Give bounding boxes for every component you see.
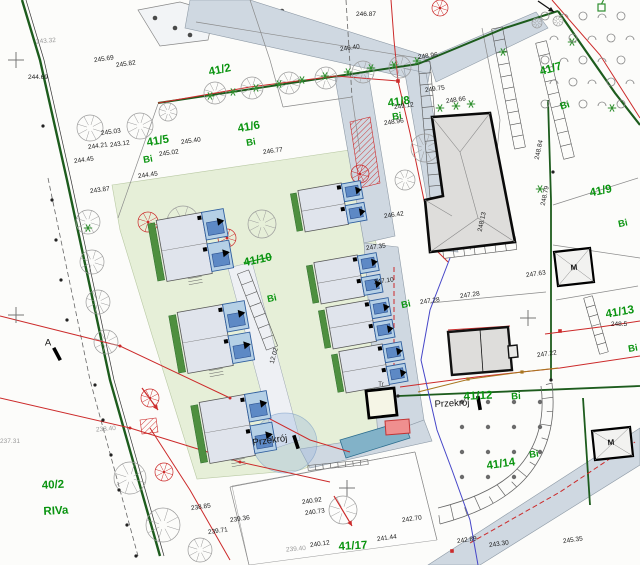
pole-marker — [129, 427, 132, 430]
pole-marker — [119, 345, 122, 348]
shrub-icon — [452, 102, 460, 109]
orchard-symbol — [579, 12, 587, 20]
orchard-dot — [460, 450, 464, 454]
tree — [86, 290, 110, 314]
boundary-point — [54, 238, 57, 241]
boundary-point — [125, 523, 128, 526]
parcel-line — [553, 178, 638, 205]
tree-dot — [173, 26, 178, 31]
orchard-dot — [460, 400, 464, 404]
orchard-dot — [512, 475, 516, 479]
orchard-symbol — [588, 80, 596, 84]
tree-center — [147, 221, 150, 224]
porch — [508, 345, 518, 358]
tree — [188, 538, 212, 562]
orchard-symbol — [550, 36, 558, 40]
boundary-point — [50, 198, 53, 201]
road — [428, 12, 548, 82]
orchard-symbol — [598, 102, 606, 106]
section-mark — [52, 347, 62, 361]
boundary-point-red — [450, 549, 454, 553]
utility-line-red — [552, 0, 640, 118]
boundary-point — [59, 278, 62, 281]
parcel-line — [430, 292, 546, 303]
slope-edge — [438, 386, 542, 508]
site-plan-canvas — [0, 0, 640, 565]
pole-marker — [239, 461, 242, 464]
site-plan-map: 41/241/5Bi41/6Bi41/8Bi41/7Bi41/9Bi41/10B… — [0, 0, 640, 565]
boundary-point — [551, 170, 554, 173]
wooded-area-symbol — [598, 4, 605, 11]
shrub-icon — [84, 224, 92, 231]
orchard-dot — [512, 400, 516, 404]
transformer-station — [366, 388, 397, 418]
boundary-point-red — [558, 329, 562, 333]
orchard-dot — [460, 475, 464, 479]
boundary-point — [549, 378, 552, 381]
boundary-point — [134, 554, 137, 557]
orchard-dot — [486, 425, 490, 429]
field-boundary — [158, 64, 418, 103]
grid-cross-icon — [520, 310, 536, 326]
tree-center — [359, 173, 362, 176]
orchard-dot — [486, 450, 490, 454]
pole-marker — [229, 397, 232, 400]
tree — [395, 170, 415, 190]
orchard-dot — [512, 425, 516, 429]
boundary-point — [101, 418, 104, 421]
tree — [127, 113, 153, 139]
tree-center — [163, 471, 166, 474]
tree-dot — [153, 16, 158, 21]
orchard-symbol — [579, 100, 587, 108]
tree — [553, 16, 563, 26]
tree — [77, 115, 103, 141]
boundary-point-red — [396, 79, 400, 83]
shrub-icon — [467, 100, 475, 107]
grid-cross-icon — [8, 307, 24, 323]
section-mark — [476, 396, 482, 410]
station-marker — [385, 419, 410, 435]
orchard-symbol — [560, 58, 568, 62]
tree — [159, 103, 177, 121]
orchard-symbol — [541, 56, 549, 64]
gas-marker — [466, 377, 469, 380]
boundary-point — [117, 488, 120, 491]
gas-marker — [520, 370, 523, 373]
orchard-symbol — [588, 36, 596, 40]
utility-line-red — [400, 356, 640, 387]
parcel-line — [556, 286, 638, 300]
shrub-icon — [536, 185, 544, 192]
orchard-symbol — [579, 56, 587, 64]
boundary-point — [396, 394, 399, 397]
orchard-symbol — [617, 12, 625, 20]
boundary-point — [65, 318, 68, 321]
orchard-symbol — [607, 34, 615, 42]
field-boundary — [558, 11, 640, 125]
field-boundary — [548, 100, 551, 380]
orchard-dot — [512, 450, 516, 454]
tree-dot — [188, 33, 193, 38]
orchard-symbol — [626, 80, 634, 84]
grid-cross-icon — [8, 52, 24, 68]
orchard-symbol — [617, 56, 625, 64]
orchard-dot — [486, 400, 490, 404]
orchard-symbol — [626, 36, 634, 40]
parking-row — [584, 296, 609, 354]
tree — [76, 210, 100, 234]
orchard-symbol — [569, 78, 577, 86]
orchard-dot — [486, 475, 490, 479]
boundary-point — [41, 124, 44, 127]
shrub-icon — [436, 104, 444, 111]
shrub-icon — [608, 104, 616, 111]
boundary-point — [93, 383, 96, 386]
orchard-dot — [460, 425, 464, 429]
tree-center — [439, 7, 442, 10]
orchard-dot — [538, 400, 542, 404]
boundary-point — [109, 453, 112, 456]
orchard-symbol — [598, 14, 606, 18]
